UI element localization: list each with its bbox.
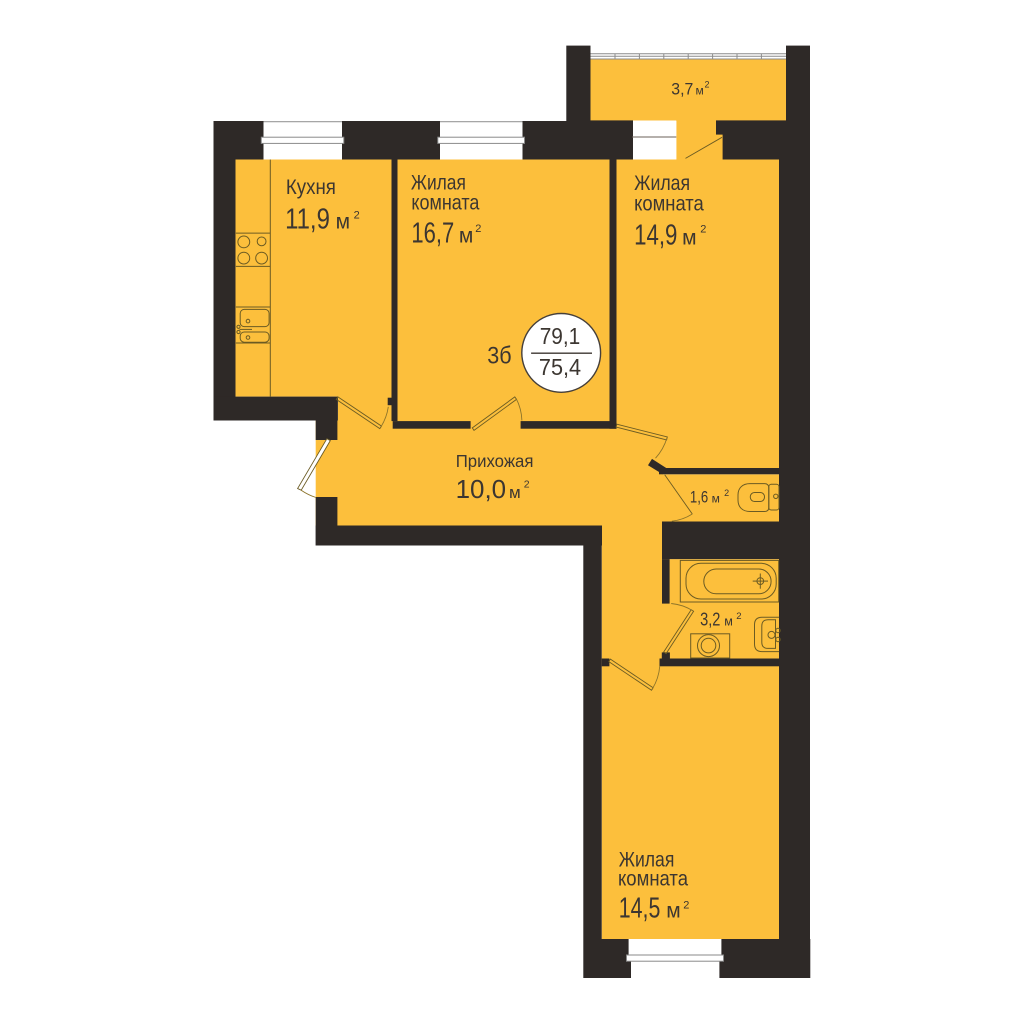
svg-text:Кухня: Кухня: [286, 176, 336, 199]
svg-text:м: м: [336, 211, 350, 234]
svg-text:комната: комната: [411, 192, 479, 215]
svg-text:м: м: [696, 83, 704, 97]
svg-text:3,7: 3,7: [671, 80, 693, 98]
svg-text:11,9: 11,9: [285, 204, 330, 236]
svg-text:3,2: 3,2: [700, 609, 720, 630]
svg-text:м: м: [459, 224, 473, 247]
svg-text:комната: комната: [634, 193, 704, 216]
svg-text:75,4: 75,4: [539, 354, 581, 380]
svg-text:16,7: 16,7: [411, 217, 454, 249]
svg-text:м: м: [682, 226, 696, 249]
svg-text:2: 2: [524, 478, 530, 490]
svg-text:79,1: 79,1: [540, 323, 581, 349]
svg-text:2: 2: [705, 80, 710, 90]
svg-text:м: м: [724, 615, 733, 629]
svg-text:2: 2: [475, 223, 481, 235]
svg-text:2: 2: [736, 611, 741, 622]
svg-text:Прихожая: Прихожая: [456, 451, 534, 471]
svg-text:2: 2: [700, 223, 706, 235]
svg-text:м: м: [509, 483, 521, 502]
svg-text:2: 2: [354, 209, 360, 221]
svg-text:м: м: [666, 899, 680, 922]
svg-text:комната: комната: [618, 868, 688, 891]
svg-text:3б: 3б: [487, 342, 511, 369]
svg-text:10,0: 10,0: [456, 474, 507, 504]
svg-text:14,9: 14,9: [634, 220, 677, 252]
svg-text:1,6: 1,6: [690, 489, 708, 507]
svg-text:2: 2: [683, 900, 689, 912]
svg-text:14,5: 14,5: [619, 892, 661, 924]
svg-text:2: 2: [724, 488, 729, 498]
svg-text:м: м: [712, 492, 720, 506]
